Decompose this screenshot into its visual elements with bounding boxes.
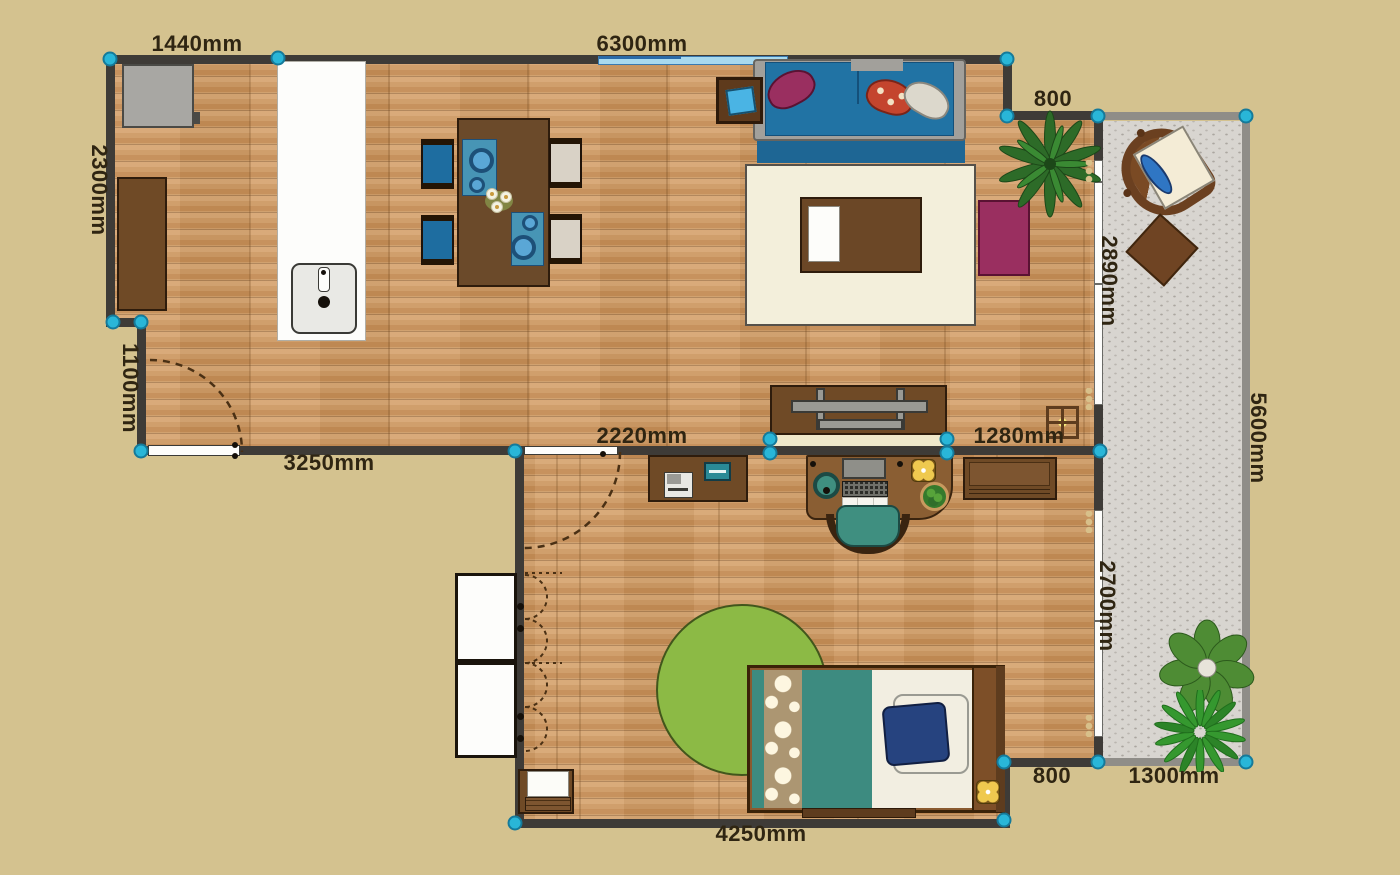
wardrobe-bottom[interactable]	[455, 662, 517, 758]
sink-faucet-dot	[321, 270, 326, 275]
corner-handle[interactable]	[940, 446, 955, 461]
pillow-icon[interactable]	[882, 701, 951, 766]
desk-screw-dot	[810, 461, 816, 467]
speaker-dot	[823, 487, 830, 494]
corner-handle[interactable]	[508, 816, 523, 831]
corner-handle[interactable]	[271, 51, 286, 66]
tablet-icon[interactable]	[725, 86, 756, 116]
folding-door-pivot-dot	[517, 603, 524, 610]
plate-icon	[522, 215, 538, 231]
laptop-line	[709, 470, 726, 473]
kitchen-cabinet-icon[interactable]	[117, 177, 167, 311]
office-chair-icon[interactable]	[836, 505, 900, 547]
flower-centerpiece-icon[interactable]	[481, 183, 517, 219]
floorplan-canvas: 1440mm 6300mm 800 2300mm 2890mm 5600mm 1…	[0, 0, 1400, 875]
bedside-lamp-icon[interactable]	[976, 780, 1000, 804]
stove-icon[interactable]	[122, 64, 194, 128]
corner-handle[interactable]	[106, 315, 121, 330]
dimension-label: 800	[1033, 763, 1071, 789]
stove-handle	[192, 112, 200, 124]
folding-door-pivot-dot	[517, 625, 524, 632]
corner-handle[interactable]	[1000, 109, 1015, 124]
bush-plant-icon[interactable]	[1148, 690, 1253, 772]
dimension-label: 1280mm	[973, 423, 1064, 449]
curtain-squiggle	[1084, 160, 1094, 182]
dimension-label: 5600mm	[1245, 392, 1271, 483]
desk-lamp-icon[interactable]	[911, 459, 936, 482]
dimension-label: 2220mm	[596, 423, 687, 449]
corner-handle[interactable]	[1091, 109, 1106, 124]
dimension-label: 2890mm	[1096, 235, 1122, 326]
dining-chair-icon[interactable]	[421, 215, 454, 265]
dimension-label: 1300mm	[1128, 763, 1219, 789]
corner-handle[interactable]	[997, 813, 1012, 828]
plate-icon	[469, 148, 494, 173]
speaker-icon[interactable]	[813, 472, 840, 499]
corner-handle[interactable]	[134, 315, 149, 330]
dining-chair-icon[interactable]	[421, 139, 454, 189]
dimension-label: 800	[1034, 86, 1072, 112]
monitor-icon[interactable]	[842, 458, 886, 479]
sink-drain	[318, 296, 330, 308]
printer-lid	[667, 474, 681, 484]
corner-handle[interactable]	[1093, 444, 1108, 459]
tv-icon[interactable]	[791, 400, 928, 413]
dimension-label: 4250mm	[715, 821, 806, 847]
dining-chair-icon[interactable]	[549, 138, 582, 188]
folding-door-pivot-dot	[517, 735, 524, 742]
corner-handle[interactable]	[134, 444, 149, 459]
dimension-label: 6300mm	[596, 31, 687, 57]
bed-floral-band	[764, 670, 802, 808]
curtain-squiggle	[1084, 511, 1094, 533]
curtain-squiggle	[1084, 715, 1094, 737]
tv-bracket-bottom	[818, 419, 903, 430]
corner-handle[interactable]	[763, 446, 778, 461]
wall-opening[interactable]	[770, 434, 947, 446]
corner-handle[interactable]	[1091, 755, 1106, 770]
desk-plant-icon[interactable]	[920, 482, 949, 511]
wardrobe-top[interactable]	[455, 573, 517, 662]
corner-handle[interactable]	[1239, 109, 1254, 124]
wall-shelf-edge	[969, 489, 1050, 494]
dimension-label: 3250mm	[283, 450, 374, 476]
dimension-label: 2300mm	[86, 144, 112, 235]
curtain-squiggle	[1084, 388, 1094, 410]
corner-handle[interactable]	[103, 52, 118, 67]
dimension-label: 1100mm	[117, 343, 143, 433]
door-swing-arc	[146, 356, 246, 456]
corner-handle[interactable]	[1239, 755, 1254, 770]
folding-door-pivot-dot	[517, 713, 524, 720]
desk-screw-dot	[897, 461, 903, 467]
dimension-label: 1440mm	[151, 31, 242, 57]
dining-chair-icon[interactable]	[549, 214, 582, 264]
wall-shelf-inner	[969, 462, 1050, 486]
nightstand-drawers	[525, 797, 571, 811]
sofa-back-notch	[851, 59, 903, 71]
keyboard-icon[interactable]	[842, 481, 888, 497]
wardrobe-folding-door-arcs	[522, 572, 570, 758]
plate-icon	[511, 235, 536, 260]
coffee-table-tray	[808, 206, 840, 262]
sideboard-icon[interactable]	[648, 455, 748, 502]
corner-handle[interactable]	[1000, 52, 1015, 67]
door-swing-arc	[520, 448, 624, 552]
corner-handle[interactable]	[508, 444, 523, 459]
corner-handle[interactable]	[940, 432, 955, 447]
printer-slot	[668, 488, 688, 491]
corner-handle[interactable]	[997, 755, 1012, 770]
nightstand-top	[527, 771, 569, 797]
bed-footboard	[802, 808, 916, 818]
dimension-label: 2700mm	[1094, 560, 1120, 651]
corner-handle[interactable]	[763, 432, 778, 447]
